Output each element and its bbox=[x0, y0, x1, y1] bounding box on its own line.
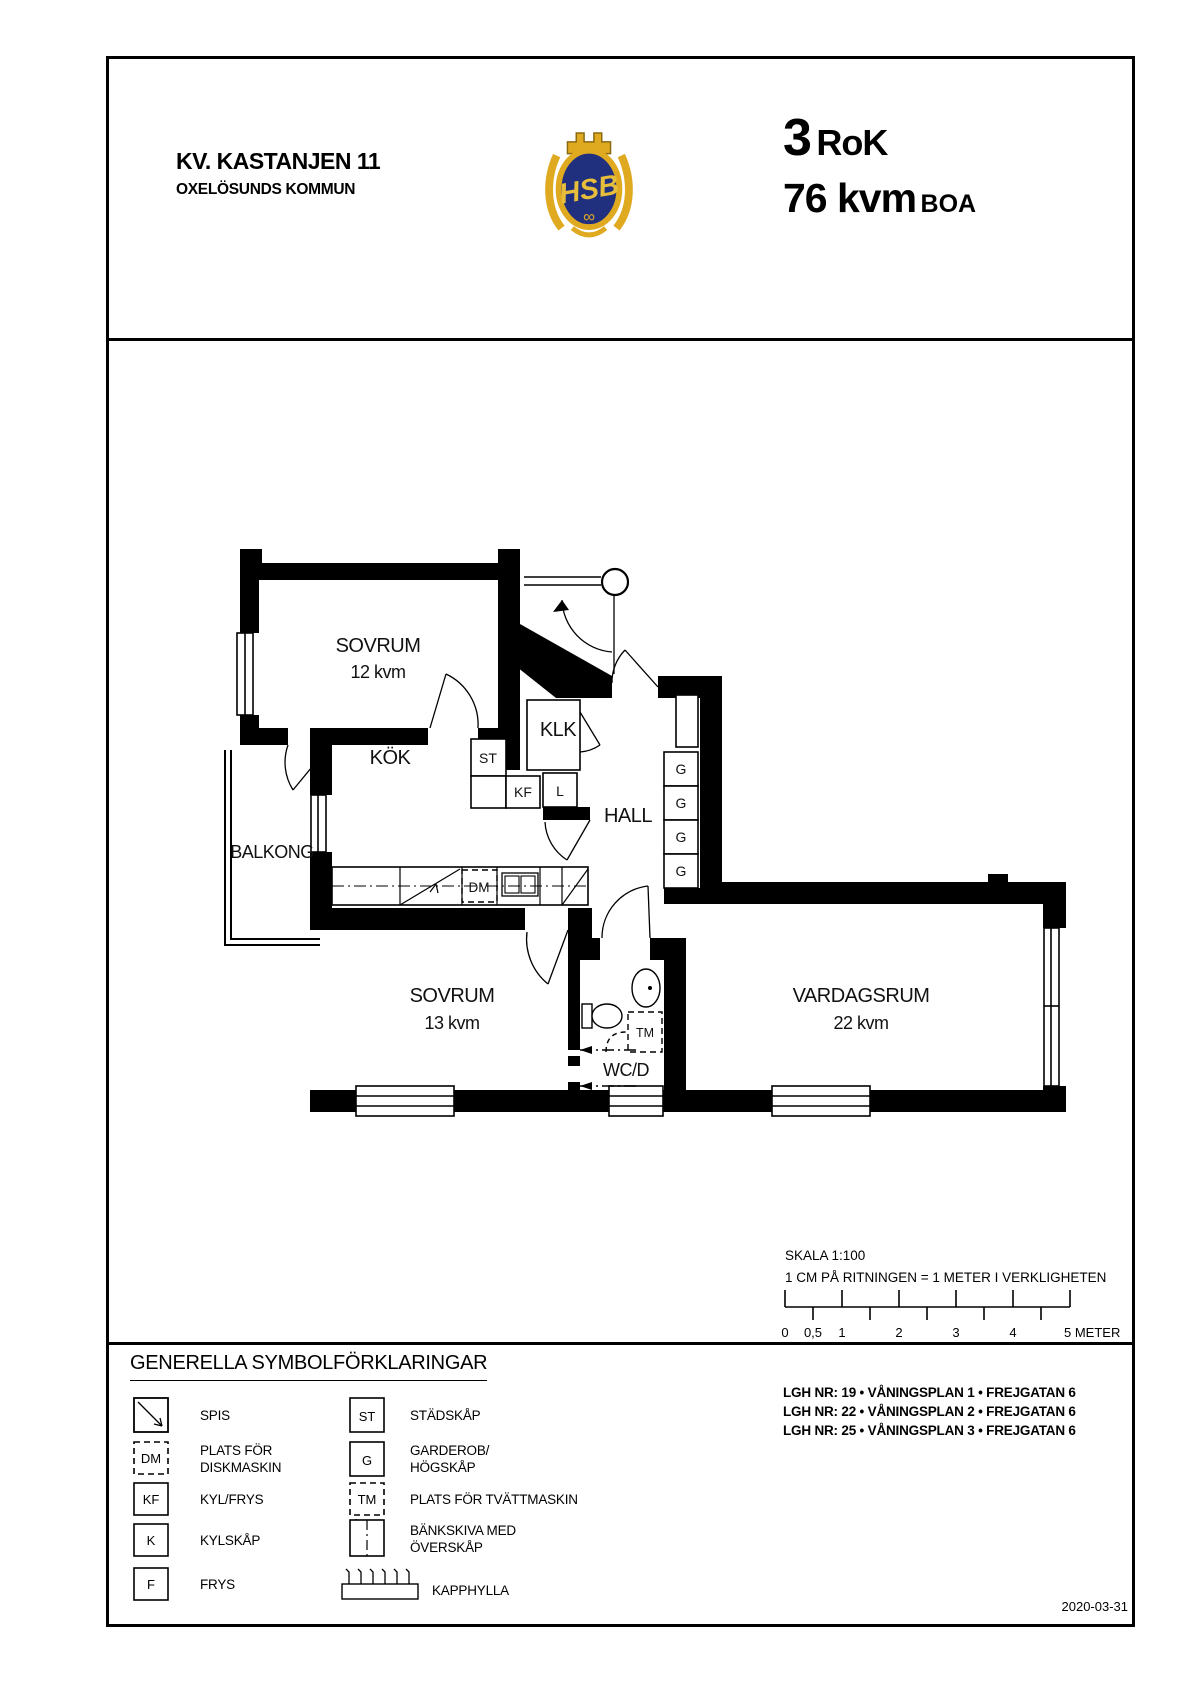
revision-date: 2020-03-31 bbox=[1000, 1599, 1128, 1614]
legend-label-spis: SPIS bbox=[200, 1407, 230, 1424]
room-area-sovrum12: 12 kvm bbox=[350, 662, 405, 682]
svg-text:5 METER: 5 METER bbox=[1064, 1325, 1120, 1340]
room-label-klk: KLK bbox=[540, 719, 577, 741]
svg-text:K: K bbox=[147, 1533, 156, 1548]
room-label-vardagsrum: VARDAGSRUM bbox=[793, 985, 930, 1007]
scale-subtitle: 1 CM PÅ RITNINGEN = 1 METER I VERKLIGHET… bbox=[785, 1270, 1106, 1285]
dm-symbol-icon: DM bbox=[132, 1440, 170, 1481]
kapphylla-symbol-icon bbox=[340, 1566, 422, 1607]
room-area-vardagsrum: 22 kvm bbox=[833, 1013, 888, 1033]
bankskiva-symbol-icon bbox=[348, 1518, 386, 1563]
legend-label-f: FRYS bbox=[200, 1576, 235, 1593]
svg-text:ST: ST bbox=[359, 1409, 376, 1424]
st-symbol-icon: ST bbox=[348, 1396, 386, 1439]
apartment-list-item: LGH NR: 22 • VÅNINGSPLAN 2 • FREJGATAN 6 bbox=[783, 1402, 1076, 1421]
svg-text:F: F bbox=[147, 1577, 155, 1592]
kitchen-counter bbox=[332, 867, 588, 905]
apartment-list: LGH NR: 19 • VÅNINGSPLAN 1 • FREJGATAN 6… bbox=[783, 1383, 1076, 1440]
legend-label-g: GARDEROB/ HÖGSKÅP bbox=[410, 1442, 489, 1476]
svg-text:2: 2 bbox=[895, 1325, 902, 1340]
scale-bar: SKALA 1:100 1 CM PÅ RITNINGEN = 1 METER … bbox=[781, 1248, 1120, 1340]
symbol-label-kf: KF bbox=[514, 784, 532, 800]
legend-label-st: STÄDSKÅP bbox=[410, 1407, 480, 1424]
symbol-label-l: L bbox=[556, 783, 564, 799]
legend-title: GENERELLA SYMBOLFÖRKLARINGAR bbox=[130, 1352, 487, 1381]
scale-tick-labels: 0 0,5 1 2 3 4 5 METER bbox=[781, 1325, 1120, 1340]
svg-text:KF: KF bbox=[143, 1492, 160, 1507]
scale-title: SKALA 1:100 bbox=[785, 1248, 865, 1263]
svg-text:0,5: 0,5 bbox=[804, 1325, 822, 1340]
spis-symbol-icon bbox=[132, 1396, 170, 1439]
svg-text:0: 0 bbox=[781, 1325, 788, 1340]
svg-text:G: G bbox=[362, 1453, 372, 1468]
toilet-bowl-icon bbox=[592, 1004, 622, 1028]
k-symbol-icon: K bbox=[132, 1522, 170, 1563]
room-label-sovrum13: SOVRUM bbox=[410, 985, 495, 1007]
legend-label-dm: PLATS FÖR DISKMASKIN bbox=[200, 1442, 281, 1476]
room-label-wcd: WC/D bbox=[603, 1060, 649, 1080]
closet-label-g3: G bbox=[676, 829, 687, 845]
g-symbol-icon: G bbox=[348, 1440, 386, 1483]
svg-text:1: 1 bbox=[838, 1325, 845, 1340]
toilet-tank-icon bbox=[582, 1004, 592, 1028]
legend-label-tm: PLATS FÖR TVÄTTMASKIN bbox=[410, 1491, 578, 1508]
apartment-list-item: LGH NR: 25 • VÅNINGSPLAN 3 • FREJGATAN 6 bbox=[783, 1421, 1076, 1440]
washbasin-icon bbox=[632, 969, 660, 1007]
svg-text:4: 4 bbox=[1009, 1325, 1016, 1340]
svg-text:TM: TM bbox=[358, 1492, 377, 1507]
closet-label-g1: G bbox=[676, 761, 687, 777]
closet-label-g2: G bbox=[676, 795, 687, 811]
room-label-kok: KÖK bbox=[370, 747, 412, 769]
room-label-hall: HALL bbox=[604, 805, 652, 827]
scale-ruler bbox=[785, 1290, 1070, 1320]
legend-label-kf: KYL/FRYS bbox=[200, 1491, 263, 1508]
doors bbox=[285, 650, 658, 984]
legend-label-kapphylla: KAPPHYLLA bbox=[432, 1582, 509, 1599]
apartment-list-item: LGH NR: 19 • VÅNINGSPLAN 1 • FREJGATAN 6 bbox=[783, 1383, 1076, 1402]
floorplan-page: KV. KASTANJEN 11 OXELÖSUNDS KOMMUN HSB ∞… bbox=[0, 0, 1191, 1684]
room-area-sovrum13: 13 kvm bbox=[424, 1013, 479, 1033]
svg-text:3: 3 bbox=[952, 1325, 959, 1340]
kf-symbol-icon: KF bbox=[132, 1481, 170, 1522]
svg-text:DM: DM bbox=[141, 1451, 161, 1466]
legend-label-k: KYLSKÅP bbox=[200, 1532, 260, 1549]
f-symbol-icon: F bbox=[132, 1566, 170, 1607]
room-label-balkong: BALKONG bbox=[230, 842, 314, 862]
room-label-sovrum12: SOVRUM bbox=[336, 635, 421, 657]
symbol-label-st: ST bbox=[479, 750, 497, 766]
legend-label-bankskiva: BÄNKSKIVA MED ÖVERSKÅP bbox=[410, 1522, 516, 1556]
symbol-label-tm: TM bbox=[636, 1026, 654, 1040]
symbol-label-dm: DM bbox=[469, 880, 490, 895]
closet-label-g4: G bbox=[676, 863, 687, 879]
